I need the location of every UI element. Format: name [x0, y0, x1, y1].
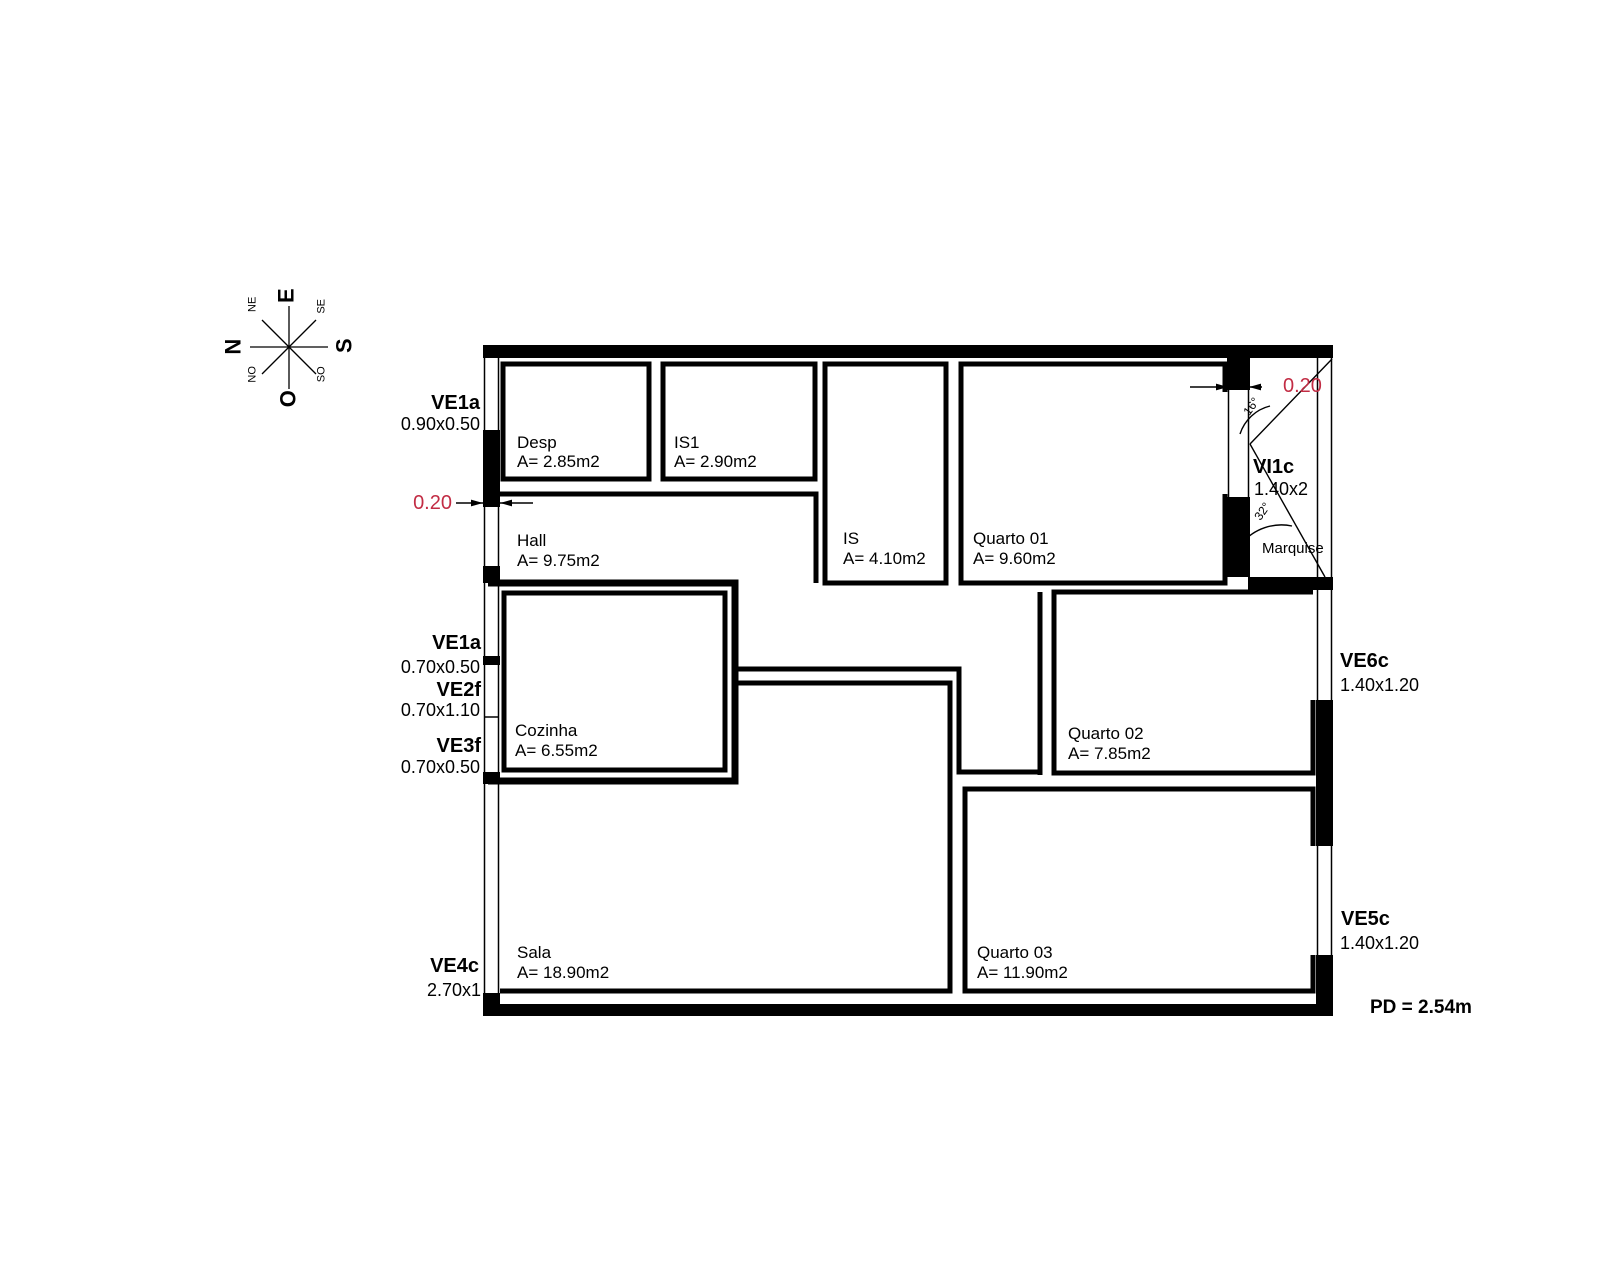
compass-south: S — [331, 326, 356, 366]
dim-right-wall-text: 0.20 — [1283, 375, 1322, 398]
canopy-slope-upper — [1250, 359, 1332, 444]
room-is1-area: A= 2.90m2 — [674, 452, 757, 472]
window-hall-section — [485, 507, 499, 566]
window-openings — [484, 358, 1332, 993]
window-ve5c — [1318, 846, 1332, 955]
callout-ve5c-code: VE5c — [1341, 908, 1390, 931]
room-quarto03-area: A= 11.90m2 — [977, 963, 1068, 983]
room-sala-label: Sala — [517, 943, 551, 963]
compass-west: O — [275, 379, 300, 419]
callout-ve2f-code: VE2f — [437, 679, 481, 702]
callout-ve3f-size: 0.70x0.50 — [401, 757, 480, 778]
window-ve4c — [485, 784, 499, 993]
room-desp-label: Desp — [517, 433, 557, 453]
room-cozinha-label: Cozinha — [515, 721, 577, 741]
room-boxes — [488, 364, 1313, 991]
compass-north: N — [220, 327, 245, 367]
window-ve1a-090 — [485, 358, 499, 430]
room-quarto02-label: Quarto 02 — [1068, 724, 1144, 744]
dim-arrow — [1249, 384, 1261, 391]
window-ve2f-ve3f — [484, 665, 499, 772]
room-marquise-label: Marquise — [1262, 540, 1324, 557]
room-hall-label: Hall — [517, 531, 546, 551]
callout-ve4c-size: 2.70x1 — [427, 980, 481, 1001]
callout-ve5c-size: 1.40x1.20 — [1340, 933, 1419, 954]
floor-plan: E N S O NE SE NO SO Desp A= 2.85m2 IS1 A… — [0, 0, 1600, 1280]
compass-southeast: SE — [316, 286, 329, 326]
room-sala-area: A= 18.90m2 — [517, 963, 609, 983]
compass-northeast: NE — [247, 284, 260, 324]
window-ve6c — [1318, 590, 1332, 700]
compass-east: E — [273, 276, 298, 316]
outer-wall-bottom — [483, 1004, 1333, 1016]
callout-vi1c-size: 1.40x2 — [1254, 479, 1308, 500]
callout-ve1a-090-code: VE1a — [431, 392, 480, 415]
dim-arrow — [500, 500, 512, 507]
callout-ve1a-070-size: 0.70x0.50 — [401, 657, 480, 678]
callout-ve6c-code: VE6c — [1340, 650, 1389, 673]
dim-left-wall-text: 0.20 — [413, 492, 452, 515]
callout-ve1a-070-code: VE1a — [432, 632, 481, 655]
room-hall-area: A= 9.75m2 — [517, 551, 600, 571]
compass-southwest: SO — [316, 354, 329, 394]
room-quarto02-area: A= 7.85m2 — [1068, 744, 1151, 764]
compass-northwest: NO — [247, 354, 260, 394]
room-is-label: IS — [843, 529, 859, 549]
outer-wall-top — [483, 345, 1333, 358]
marquise-bottom-wall — [1248, 577, 1333, 590]
room-desp-area: A= 2.85m2 — [517, 452, 600, 472]
callout-ve2f-size: 0.70x1.10 — [401, 700, 480, 721]
callout-ve3f-code: VE3f — [437, 735, 481, 758]
room-is1-label: IS1 — [674, 433, 700, 453]
room-cozinha-area: A= 6.55m2 — [515, 741, 598, 761]
room-quarto01-area: A= 9.60m2 — [973, 549, 1056, 569]
ceiling-height-note: PD = 2.54m — [1370, 997, 1472, 1019]
callout-ve6c-size: 1.40x1.20 — [1340, 675, 1419, 696]
floor-plan-drawing — [0, 0, 1600, 1280]
room-quarto03-label: Quarto 03 — [977, 943, 1053, 963]
callout-vi1c-code: VI1c — [1253, 456, 1294, 479]
window-ve1a-070 — [485, 583, 499, 656]
dim-arrow — [471, 500, 483, 507]
callout-ve4c-code: VE4c — [430, 955, 479, 978]
callout-ve1a-090-size: 0.90x0.50 — [401, 414, 480, 435]
room-quarto01-label: Quarto 01 — [973, 529, 1049, 549]
room-is-area: A= 4.10m2 — [843, 549, 926, 569]
